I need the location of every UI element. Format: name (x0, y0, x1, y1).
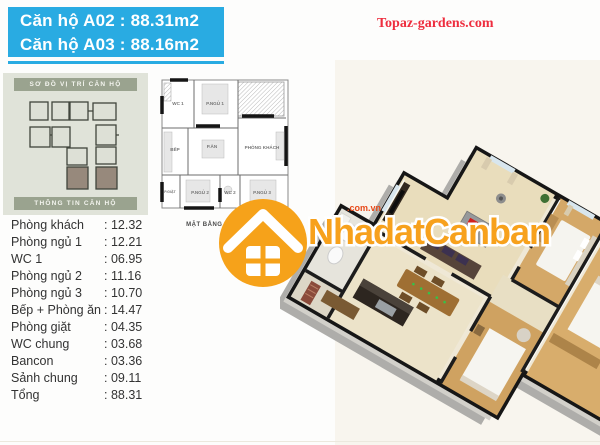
label-bedroom2: P.NGỦ 2 (191, 189, 209, 195)
label-dining: P.ĂN (207, 143, 218, 149)
building-minimap (15, 95, 135, 191)
balcony-hatch (238, 82, 284, 116)
table-row: Phòng ngủ 1: 12.21 (11, 234, 153, 251)
room-value: : 09.11 (104, 370, 141, 387)
room-info-table: Phòng khách: 12.32 Phòng ngủ 1: 12.21 WC… (11, 217, 153, 404)
room-label: Bancon (11, 354, 53, 368)
table-row: Tổng: 88.31 (11, 387, 153, 404)
label-bedroom1: P.NGỦ 1 (206, 100, 224, 106)
table-row: Phòng giặt: 04.35 (11, 319, 153, 336)
watermark-brand: NhadatCanban (308, 211, 550, 252)
table-row: Sảnh chung: 09.11 (11, 370, 153, 387)
table-row: Bếp + Phòng ăn: 14.47 (11, 302, 153, 319)
room-label: Phòng khách (11, 218, 84, 232)
room-value: : 06.95 (104, 251, 142, 268)
panel-title-bottom: THÔNG TIN CĂN HỘ (14, 197, 137, 210)
label-wc1: WC 1 (172, 101, 184, 106)
room-label: Phòng ngủ 1 (11, 235, 82, 249)
room-label: Sảnh chung (11, 371, 78, 385)
apartment-banner: Căn hộ A02 : 88.31m2 Căn hộ A03 : 88.16m… (8, 7, 224, 57)
room-value: : 88.31 (104, 387, 142, 404)
room-label: Phòng ngủ 2 (11, 269, 82, 283)
room-label: Bếp + Phòng ăn (11, 303, 101, 317)
room-label: WC chung (11, 337, 69, 351)
site-link: Topaz-gardens.com (377, 16, 494, 32)
room-value: : 10.70 (104, 285, 142, 302)
floorplan-infographic: WC 1 P.NGỦ 1 PHÒNG KHÁCH BẾP P.ĂN P.NGỦ … (0, 0, 600, 445)
room-label: Phòng ngủ 3 (11, 286, 82, 300)
room-label: Tổng (11, 388, 40, 402)
table-row: Phòng ngủ 3: 10.70 (11, 285, 153, 302)
table-row: Phòng khách: 12.32 (11, 217, 153, 234)
table-row: Phòng ngủ 2: 11.16 (11, 268, 153, 285)
room-value: : 14.47 (104, 302, 142, 319)
room-label: Phòng giặt (11, 320, 71, 334)
room-value: : 11.16 (104, 268, 141, 285)
watermark: NhadatCanban NhadatCanban .com.vn (216, 194, 561, 294)
room-label: WC 1 (11, 252, 42, 266)
banner-line-a03: Căn hộ A03 : 88.16m2 (20, 33, 224, 57)
watermark-domain: .com.vn (347, 203, 381, 213)
location-panel: SƠ ĐỒ VỊ TRÍ CĂN HỘ THÔNG TIN CĂN HỘ (3, 73, 148, 215)
table-row: Bancon: 03.36 (11, 353, 153, 370)
room-value: : 03.68 (104, 336, 142, 353)
panel-title-top: SƠ ĐỒ VỊ TRÍ CĂN HỘ (14, 78, 137, 91)
banner-underline (8, 61, 224, 64)
highlighted-unit-a02 (67, 167, 88, 189)
label-kitchen: BẾP (170, 146, 179, 152)
room-value: : 12.32 (104, 217, 142, 234)
label-living: PHÒNG KHÁCH (245, 143, 280, 150)
table-row: WC chung: 03.68 (11, 336, 153, 353)
room-value: : 04.35 (104, 319, 142, 336)
room-value: : 12.21 (104, 234, 142, 251)
bathtub-hatch (164, 83, 171, 101)
room-value: : 03.36 (104, 353, 142, 370)
table-row: WC 1: 06.95 (11, 251, 153, 268)
highlighted-unit-a03 (96, 167, 117, 189)
banner-line-a02: Căn hộ A02 : 88.31m2 (20, 9, 224, 33)
label-laundry: P.GIẶT (164, 189, 176, 194)
